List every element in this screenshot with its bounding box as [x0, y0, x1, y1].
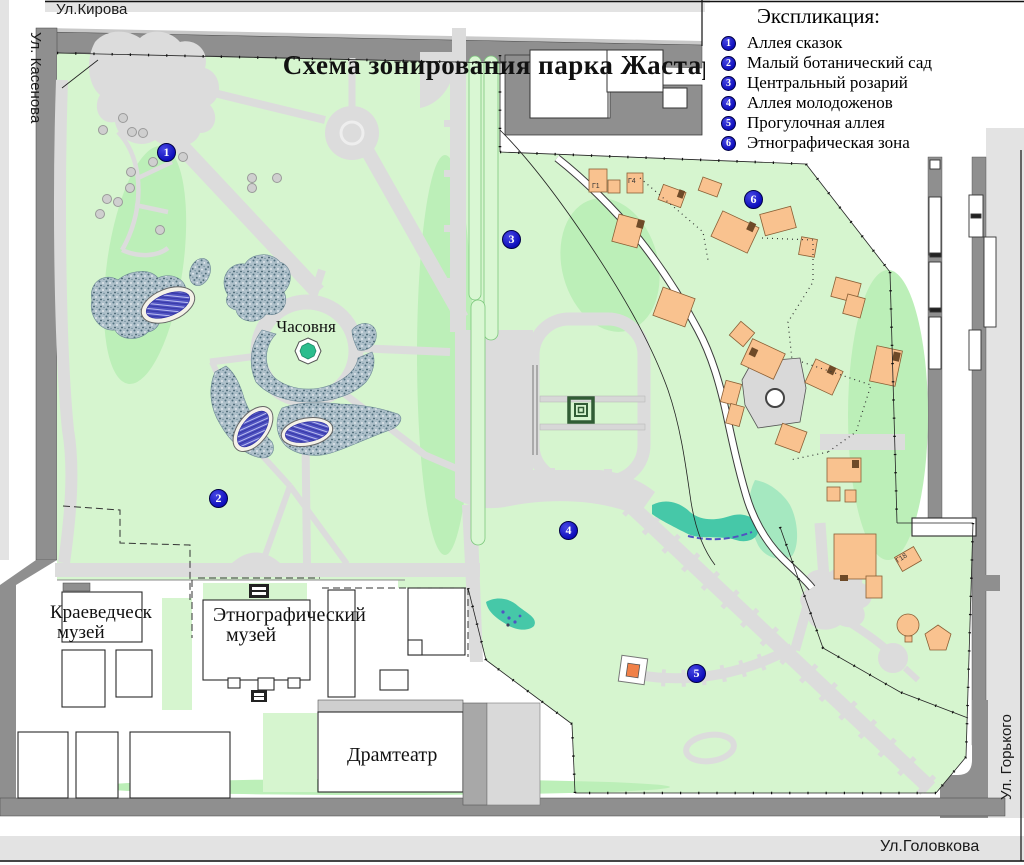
building-code-g4: Г4 [628, 178, 636, 185]
legend-item-6: 6 Этнографическая зона [705, 133, 985, 153]
street-label-golovkova: Ул.Головкова [880, 838, 979, 856]
zone-marker-5: 5 [687, 664, 706, 683]
legend-marker-4: 4 [721, 96, 736, 111]
legend-marker-6: 6 [721, 136, 736, 151]
chapel-label: Часовня [260, 317, 352, 337]
legend-item-5: 5 Прогулочная аллея [705, 113, 985, 133]
zone-marker-1: 1 [157, 143, 176, 162]
local-museum-label-line1: Краеведческ [50, 602, 152, 624]
street-label-gorkogo: Ул. Горького [998, 714, 1015, 800]
legend-item-3: 3 Центральный розарий [705, 73, 985, 93]
legend-item-4: 4 Аллея молодоженов [705, 93, 985, 113]
legend-item-label: Малый ботанический сад [747, 53, 932, 73]
drama-theater-label: Драмтеатр [347, 744, 437, 767]
legend-item-label: Центральный розарий [747, 73, 908, 93]
legend: Экспликация: 1 Аллея сказок 2 Малый бота… [705, 3, 985, 152]
legend-item-label: Этнографическая зона [747, 133, 910, 153]
zone-marker-4: 4 [559, 521, 578, 540]
legend-heading: Экспликация: [757, 4, 985, 29]
chapel-building [295, 338, 321, 364]
legend-item-label: Аллея сказок [747, 33, 842, 53]
street-label-kasenova: Ул. Касенова [27, 32, 44, 123]
legend-marker-5: 5 [721, 116, 736, 131]
local-museum-label-line2: музей [57, 622, 105, 644]
legend-item-label: Прогулочная аллея [747, 113, 885, 133]
park-zoning-map: Схема зонирования парка Жастар Ул.Кирова… [0, 0, 1024, 865]
street-label-kirova: Ул.Кирова [56, 1, 127, 18]
monument [618, 655, 647, 684]
legend-item-label: Аллея молодоженов [747, 93, 893, 113]
zone-marker-3: 3 [502, 230, 521, 249]
legend-marker-2: 2 [721, 56, 736, 71]
legend-marker-1: 1 [721, 36, 736, 51]
ethno-museum-label-line2: музей [226, 624, 276, 647]
building-code-g1: Г1 [592, 183, 600, 190]
map-title: Схема зонирования парка Жастар [240, 50, 760, 81]
zone-marker-2: 2 [209, 489, 228, 508]
zone-marker-6: 6 [744, 190, 763, 209]
legend-marker-3: 3 [721, 76, 736, 91]
legend-item-1: 1 Аллея сказок [705, 33, 985, 53]
legend-item-2: 2 Малый ботанический сад [705, 53, 985, 73]
